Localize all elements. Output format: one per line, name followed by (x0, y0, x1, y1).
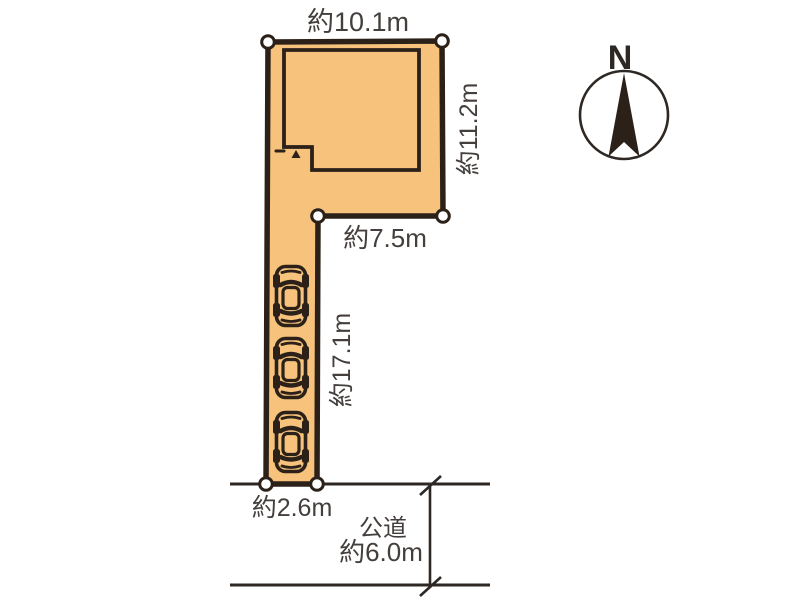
plot-diagram: 約10.1m 約11.2m 約7.5m 約17.1m 約2.6m 公道 約6.0… (0, 0, 800, 600)
road-width-dimension-line (420, 476, 441, 596)
compass-needle-icon (609, 73, 640, 157)
boundary-marker (260, 478, 273, 491)
label-driveway-length: 約17.1m (328, 313, 356, 407)
boundary-marker (312, 210, 325, 223)
label-top-width: 約10.1m (307, 7, 409, 37)
label-frontage: 約2.6m (252, 494, 333, 522)
boundary-marker (437, 210, 450, 223)
label-road-width: 約6.0m (339, 537, 423, 567)
boundary-marker (311, 478, 324, 491)
label-inner-width: 約7.5m (343, 223, 427, 253)
compass: N (580, 39, 668, 159)
boundary-marker (436, 35, 449, 48)
boundary-marker (262, 36, 275, 49)
plot-diagram-canvas: 約10.1m 約11.2m 約7.5m 約17.1m 約2.6m 公道 約6.0… (0, 0, 800, 600)
label-right-height: 約11.2m (455, 83, 483, 176)
